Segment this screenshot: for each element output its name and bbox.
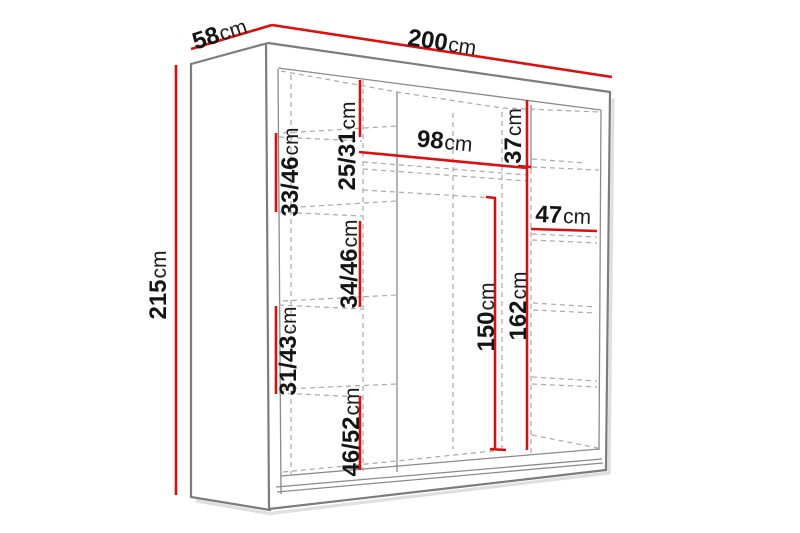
plinth-bottom-line — [277, 463, 603, 492]
hanging-rail-line — [363, 190, 494, 198]
dimension-label-left-gap-2: 34/46cm — [336, 219, 363, 308]
right-shelf-lines — [532, 159, 599, 387]
cabinet-shadow — [197, 100, 613, 514]
dimension-label-depth: 58cm — [189, 12, 250, 55]
dimension-label-left-gap-1: 33/46cm — [277, 127, 304, 216]
bottom-edge — [269, 470, 606, 509]
right-floor-diagonal — [532, 435, 598, 448]
measurement-lines — [176, 25, 612, 495]
dimension-label-left-top-gap: 25/31cm — [334, 101, 361, 190]
dimension-label-middle-width: 98cm — [416, 125, 474, 157]
front-left-edge — [266, 44, 269, 509]
dimension-label-right-width: 47cm — [535, 201, 592, 230]
diagram-canvas: 58cm 200cm 215cm 25/31cm 33/46cm 98cm 37… — [0, 0, 800, 533]
rail-height-tick-top — [486, 197, 496, 198]
dimension-label-rail-height: 150cm — [473, 282, 500, 351]
interior-floor-edge — [281, 449, 599, 476]
dimension-label-left-gap-3: 31/43cm — [275, 306, 302, 395]
inner-right-edge — [599, 110, 601, 450]
cabinet-outline — [191, 43, 610, 510]
dimension-label-middle-height: 162cm — [505, 271, 532, 340]
interior-top-edge — [278, 68, 601, 110]
dimension-label-height: 215cm — [145, 250, 172, 319]
dimension-label-right-top-gap: 37cm — [500, 108, 527, 164]
right-top-gap-tick — [518, 166, 531, 167]
dimension-label-left-bottom-gap: 46/52cm — [338, 387, 365, 476]
dimension-labels: 58cm 200cm 215cm 25/31cm 33/46cm 98cm 37… — [145, 12, 592, 476]
back-top-edge — [281, 71, 599, 112]
wardrobe-dimension-diagram: 58cm 200cm 215cm 25/31cm 33/46cm 98cm 37… — [0, 0, 800, 533]
floor-back-edge — [283, 450, 502, 472]
right-width-line — [531, 229, 597, 231]
dimension-label-width: 200cm — [406, 24, 478, 61]
rail-height-tick-bottom — [490, 449, 506, 450]
